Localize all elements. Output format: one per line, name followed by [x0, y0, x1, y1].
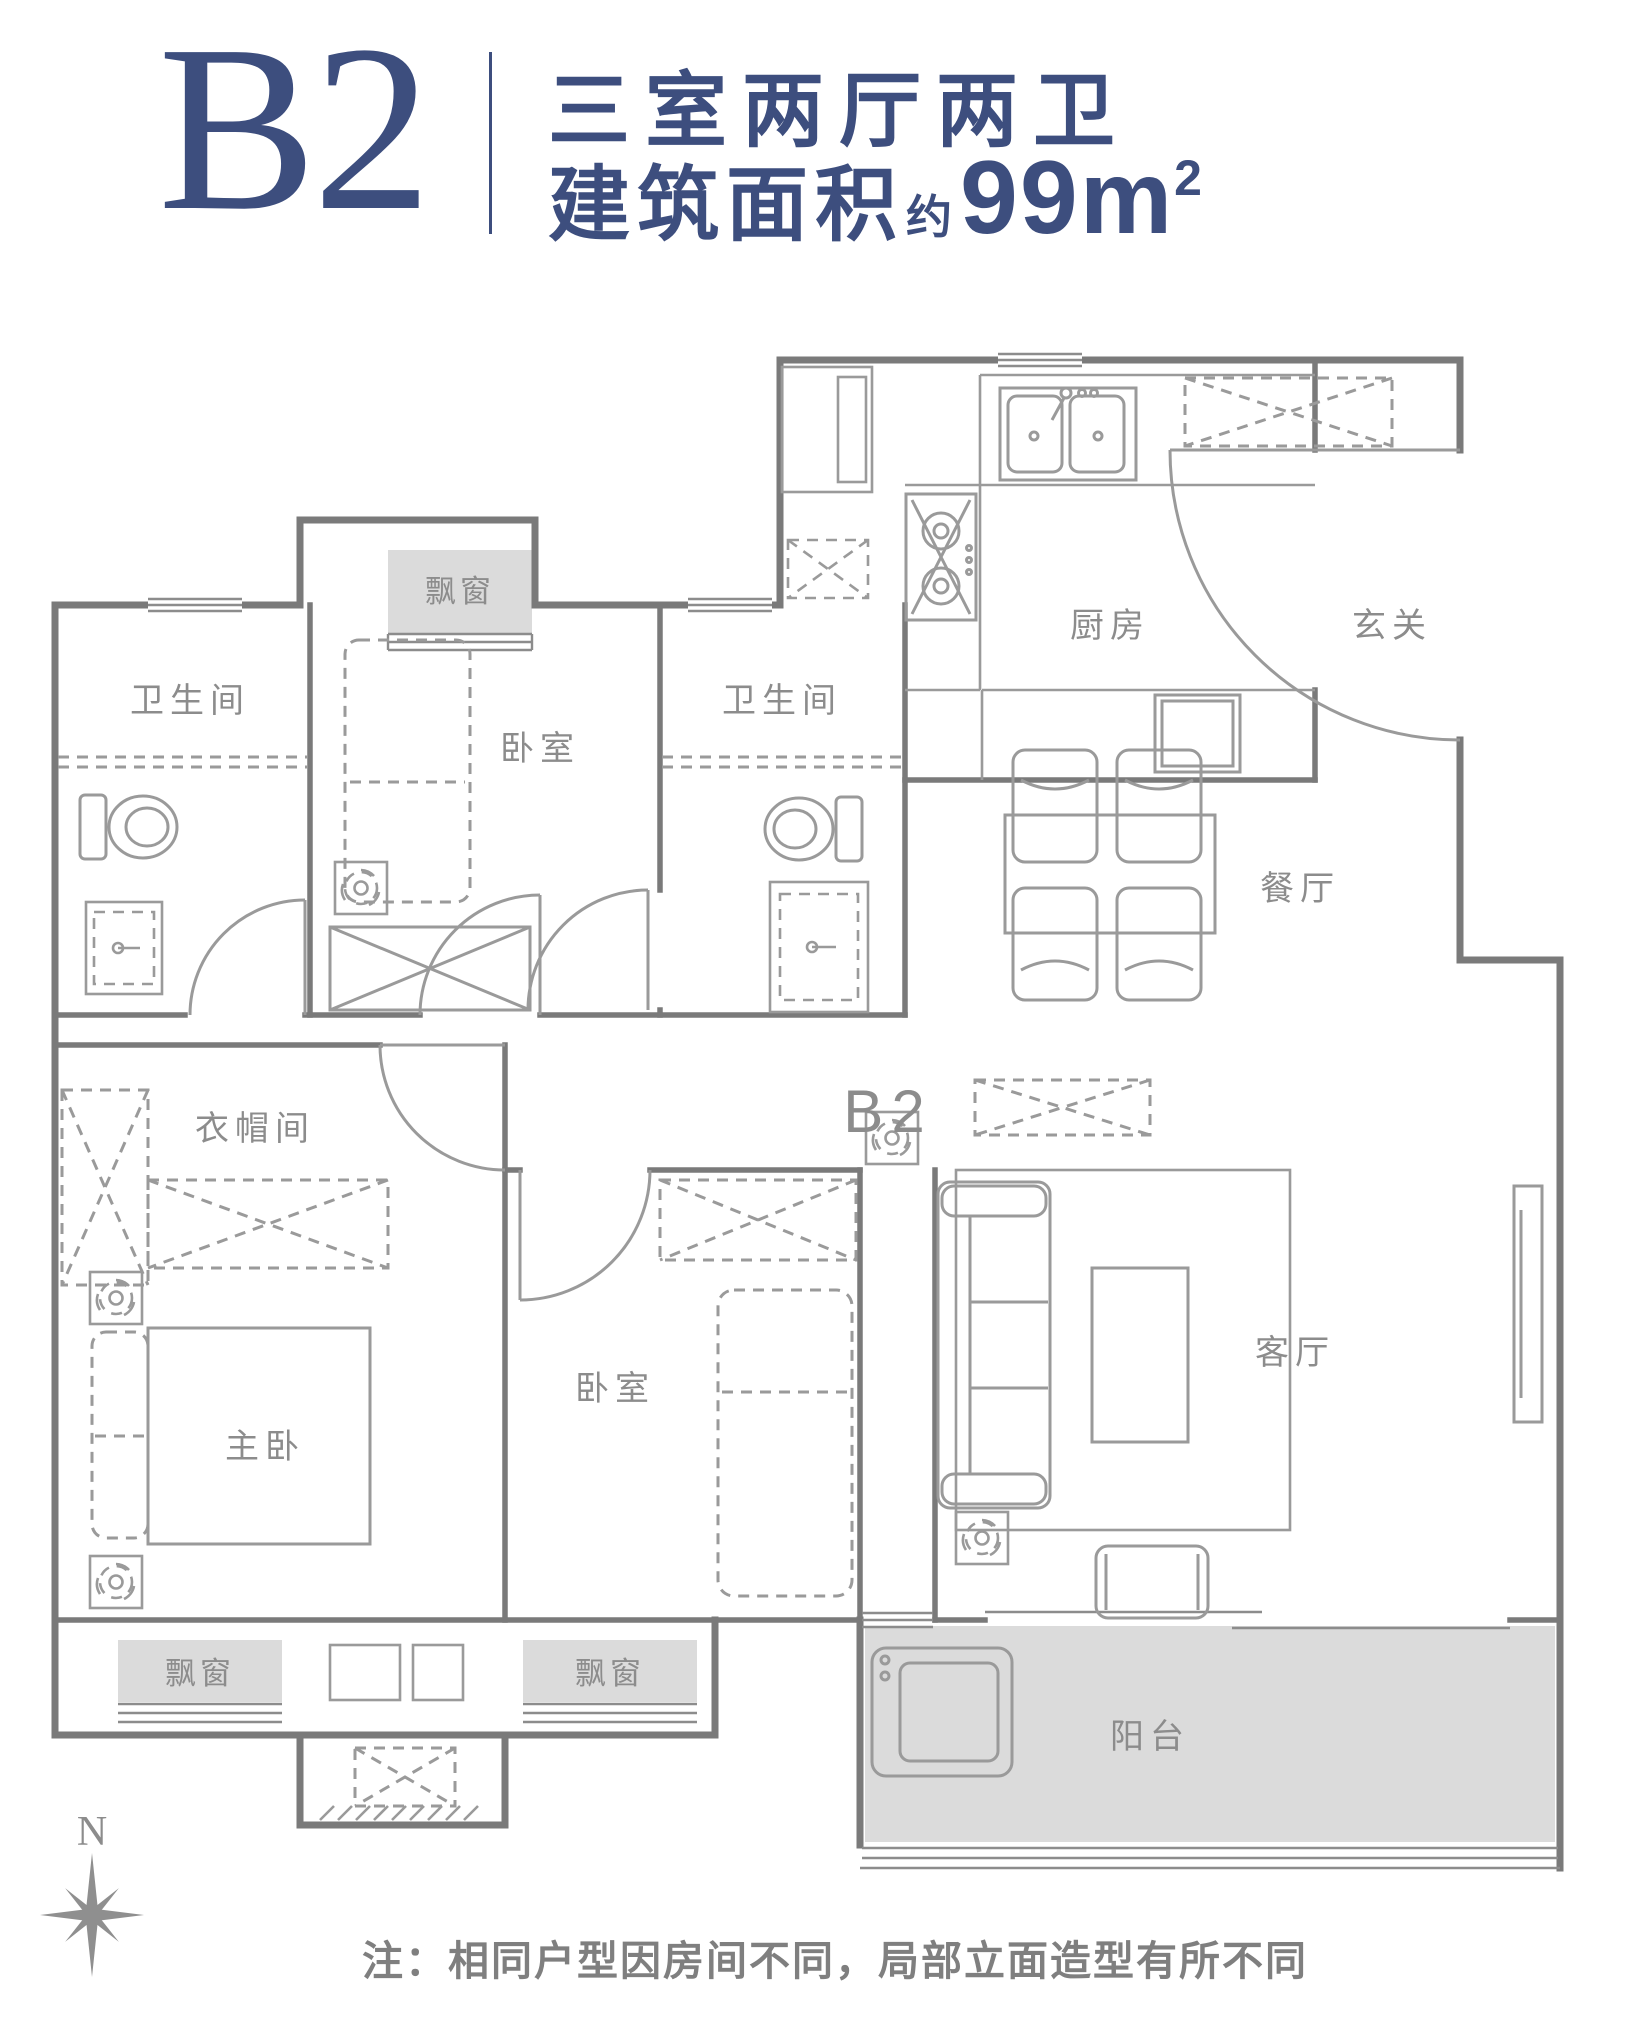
platform-duct-icon — [355, 1748, 455, 1806]
foyer-cabinet-icon — [1185, 378, 1392, 446]
wardrobe-icon — [148, 1180, 388, 1268]
bed-icon — [718, 1290, 852, 1596]
rug — [956, 1170, 1290, 1530]
fridge-icon — [1155, 695, 1240, 772]
bathroom-top-door — [190, 900, 305, 1015]
compass-north-label: N — [77, 1809, 107, 1855]
washbasin-icon — [770, 882, 868, 1012]
kitchen-counter-bottom — [982, 690, 1315, 780]
shower-partition — [662, 757, 903, 767]
bay-window-label: 飘窗 — [165, 1656, 235, 1691]
window-kitchen — [998, 351, 1082, 369]
balcony-shade — [865, 1626, 1555, 1842]
kitchen-counter-left — [905, 485, 980, 690]
room-label-dining: 餐厅 — [1260, 870, 1340, 908]
dining-set — [1005, 750, 1215, 1000]
ac-fan-icon — [90, 1556, 142, 1608]
coffee-table-icon — [1092, 1268, 1188, 1442]
bathroom-mid-door — [528, 890, 648, 1010]
bay-window-label: 飘窗 — [425, 574, 495, 609]
chair-icon — [1013, 888, 1097, 1000]
room-label-bathroom-top: 卫生间 — [130, 682, 250, 720]
kitchen-duct-icon — [788, 540, 868, 598]
bathroom-mid-fixtures — [662, 757, 903, 1012]
toilet-icon — [765, 797, 862, 861]
sliding-door-balcony — [985, 1612, 1510, 1628]
room-label-bedroom-top: 卧室 — [500, 730, 580, 768]
window-bay-left-sill — [118, 1704, 282, 1722]
platform-boxes — [330, 1645, 463, 1700]
bay-window-label: 飘窗 — [575, 1656, 645, 1691]
hall-cabinet-icon — [975, 1080, 1150, 1135]
wardrobe-icon — [62, 1090, 148, 1285]
room-label-living-room: 客厅 — [1255, 1334, 1335, 1372]
armchair-icon — [1096, 1546, 1208, 1618]
living-room-furniture — [938, 1170, 1542, 1618]
room-label-master-bedroom: 主卧 — [225, 1428, 305, 1466]
plan-code-label: B2 — [843, 1078, 932, 1145]
washbasin-icon — [86, 902, 162, 994]
dining-table-icon — [1005, 815, 1215, 933]
flue-shaft-icon — [782, 367, 872, 492]
window-bathroom-top — [148, 596, 242, 614]
storage — [62, 378, 1392, 1285]
kitchen-fixtures — [782, 367, 1315, 780]
shower-partition — [58, 757, 308, 767]
tv-icon — [1514, 1186, 1542, 1422]
wardrobe-icon — [660, 1180, 856, 1260]
room-label-foyer: 玄关 — [1352, 607, 1432, 645]
room-label-kitchen: 厨房 — [1070, 607, 1150, 645]
room-label-bathroom-mid: 卫生间 — [722, 682, 842, 720]
hatch-strip — [320, 1806, 478, 1820]
window-balcony — [860, 1848, 1560, 1868]
floorplan-drawing: 卫生间 飘窗 卧室 卫生间 厨房 玄关 餐厅 衣帽间 主卧 卧室 客厅 阳台 飘… — [0, 0, 1630, 2027]
shaded-zones — [118, 550, 1555, 1842]
window-bathroom-mid — [688, 596, 772, 614]
room-label-bedroom-bottom: 卧室 — [575, 1370, 655, 1408]
room-label-cloakroom: 衣帽间 — [195, 1110, 315, 1148]
ac-fan-icon — [90, 1272, 142, 1324]
cabinet-icon — [330, 927, 530, 1010]
ac-fan-icon — [956, 1512, 1008, 1564]
note-text: 注：相同户型因房间不同，局部立面造型有所不同 — [362, 1938, 1308, 1984]
window-hallway-balcony — [862, 1613, 933, 1627]
bedroom-top-door — [420, 895, 540, 1015]
floorplan-page: B2 三室两厅两卫 建筑面积约99m2 — [0, 0, 1630, 2027]
bathroom-top-fixtures — [58, 757, 308, 994]
toilet-icon — [80, 795, 177, 859]
stove-icon — [906, 494, 976, 620]
chair-icon — [1117, 888, 1201, 1000]
ac-units — [90, 862, 1008, 1608]
ac-fan-icon — [335, 862, 387, 914]
compass-rose-icon: N — [40, 1809, 144, 1977]
room-labels: 卫生间 飘窗 卧室 卫生间 厨房 玄关 餐厅 衣帽间 主卧 卧室 客厅 阳台 飘… — [130, 574, 1432, 1756]
window-bay-bottom-sill — [523, 1704, 697, 1722]
room-label-balcony: 阳台 — [1110, 1718, 1190, 1756]
bedroom-bottom-door — [520, 1170, 650, 1300]
kitchen-sink-icon — [1000, 388, 1136, 480]
master-suite-door — [380, 1045, 505, 1170]
chair-icon — [1013, 750, 1097, 862]
kitchen-counter-top — [980, 375, 1315, 485]
